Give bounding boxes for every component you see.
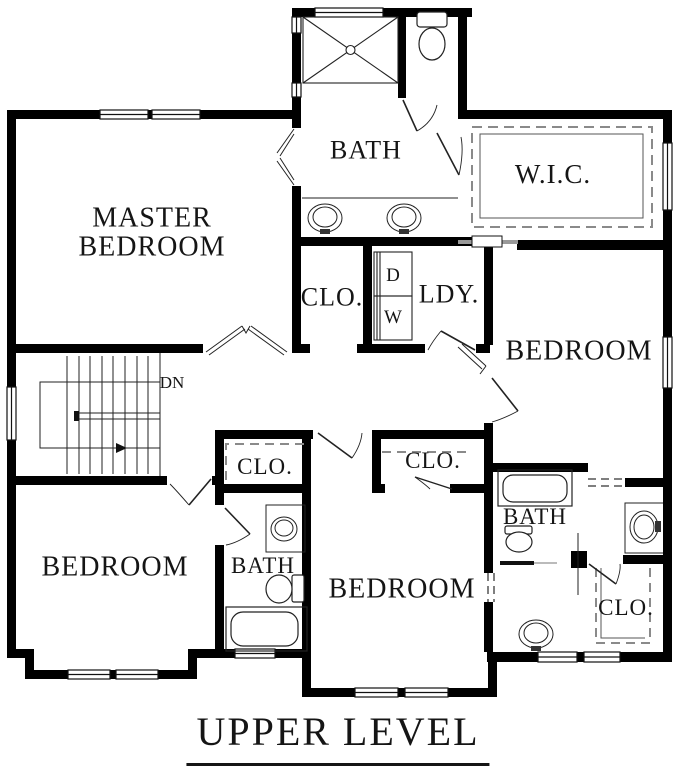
room-label-bedroom-right: BEDROOM <box>505 336 652 365</box>
door-icon <box>170 479 211 505</box>
double-vanity <box>302 198 458 234</box>
towel-bar-icon <box>500 561 534 565</box>
sink-icon <box>308 204 342 234</box>
window-icon <box>405 688 448 697</box>
room-label-laundry: LDY. <box>419 280 480 307</box>
toilet-icon <box>417 12 447 60</box>
stairs-icon <box>40 353 160 476</box>
room-label-hall-closet: CLO. <box>301 283 364 310</box>
room-label-master-line2: BEDROOM <box>78 233 225 262</box>
window-icon <box>7 387 16 440</box>
room-label-master-bedroom: MASTER BEDROOM <box>78 204 225 263</box>
window-icon <box>315 8 383 17</box>
room-label-bath-right: BATH <box>503 505 567 529</box>
door-icon <box>225 508 250 545</box>
sink-icon <box>519 620 553 651</box>
room-label-master-bath: BATH <box>330 136 402 163</box>
shower-icon <box>303 17 398 83</box>
sink-icon <box>387 204 421 234</box>
floor-plan: MASTER BEDROOM BATH W.I.C. CLO. LDY. D W… <box>0 0 675 768</box>
window-icon <box>235 649 275 658</box>
window-icon <box>355 688 398 697</box>
window-icon <box>292 17 301 33</box>
window-icon <box>584 652 620 662</box>
stairs-dn-label: DN <box>160 374 185 392</box>
plan-title: UPPER LEVEL <box>186 708 489 766</box>
room-label-closet-right: CLO. <box>598 596 654 620</box>
toilet-icon <box>266 575 304 603</box>
room-label-bedroom-center: BEDROOM <box>328 574 475 603</box>
door-icon <box>428 331 475 350</box>
door-icon <box>318 433 362 458</box>
door-icon <box>492 378 518 422</box>
door-icon <box>437 133 462 175</box>
door-icon <box>589 564 620 584</box>
window-icon <box>100 110 148 119</box>
room-label-wic: W.I.C. <box>515 160 591 188</box>
toilet-icon <box>505 526 532 552</box>
door-icon <box>403 100 437 131</box>
window-icon <box>292 83 301 97</box>
room-label-bedroom-left: BEDROOM <box>41 552 188 581</box>
cased-opening-marks <box>206 129 486 374</box>
bathtub-icon <box>498 470 572 506</box>
sink-icon <box>625 503 663 553</box>
window-icon <box>538 652 577 662</box>
door-icon <box>415 477 452 489</box>
room-label-bath-left: BATH <box>231 554 295 578</box>
window-icon <box>116 670 158 679</box>
room-label-master-line1: MASTER <box>78 204 225 233</box>
window-icon <box>68 670 110 679</box>
bathtub-icon <box>226 607 307 651</box>
room-label-closet-center: CLO. <box>405 449 461 473</box>
sink-icon <box>266 505 305 552</box>
window-icon <box>663 337 672 388</box>
dryer-label: D <box>386 266 400 286</box>
window-icon <box>152 110 200 119</box>
room-label-closet-left: CLO. <box>237 455 293 479</box>
washer-label: W <box>384 308 402 328</box>
floor-plan-drawing <box>0 0 675 768</box>
window-icon <box>663 143 672 210</box>
